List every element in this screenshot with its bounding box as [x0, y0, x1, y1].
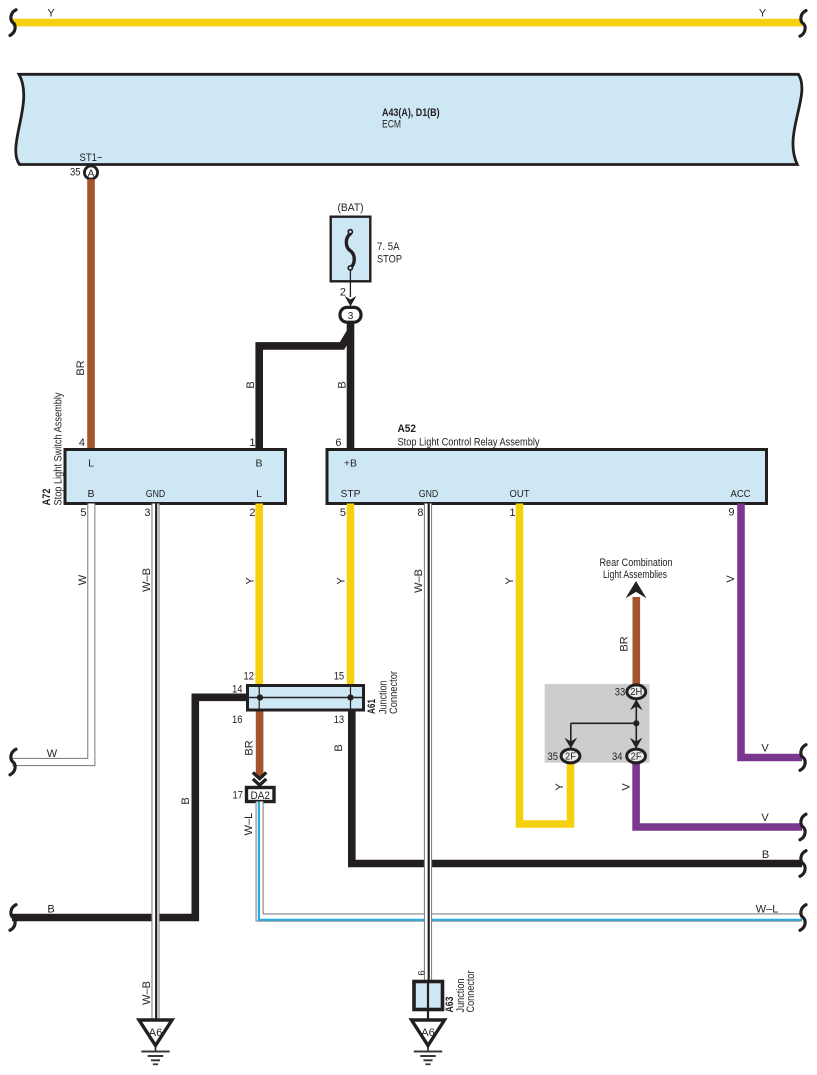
svg-text:W–B: W–B [141, 568, 153, 592]
svg-text:W–L: W–L [756, 904, 779, 916]
svg-text:Connector: Connector [465, 970, 477, 1012]
svg-text:3: 3 [348, 311, 354, 322]
svg-text:+B: +B [344, 458, 357, 470]
svg-text:(BAT): (BAT) [338, 202, 364, 214]
svg-text:Stop Light Control Relay Assem: Stop Light Control Relay Assembly [398, 437, 540, 449]
svg-text:A52: A52 [398, 423, 417, 435]
svg-text:L: L [88, 458, 94, 470]
svg-text:B: B [762, 849, 769, 861]
svg-text:9: 9 [728, 507, 734, 519]
svg-text:V: V [761, 743, 769, 755]
svg-text:Rear Combination: Rear Combination [600, 557, 673, 569]
svg-text:BR: BR [75, 360, 87, 375]
svg-text:B: B [87, 488, 94, 500]
svg-text:15: 15 [334, 671, 345, 683]
svg-text:A61: A61 [366, 699, 378, 714]
svg-text:14: 14 [232, 684, 243, 696]
svg-text:2F: 2F [565, 751, 576, 762]
svg-text:4: 4 [79, 437, 85, 449]
svg-text:B: B [245, 381, 257, 388]
svg-text:ECM: ECM [382, 118, 401, 130]
svg-text:Y: Y [47, 8, 55, 20]
svg-text:STP: STP [341, 488, 361, 500]
svg-text:GND: GND [419, 488, 439, 500]
svg-text:16: 16 [232, 714, 243, 726]
svg-text:Y: Y [244, 577, 256, 585]
svg-text:3: 3 [144, 507, 150, 519]
svg-text:STOP: STOP [377, 254, 402, 266]
svg-text:BR: BR [244, 740, 256, 755]
svg-text:B: B [47, 904, 54, 916]
svg-text:B: B [333, 744, 345, 751]
svg-text:A72: A72 [41, 489, 53, 506]
svg-text:Y: Y [759, 8, 767, 20]
svg-text:Light Assemblies: Light Assemblies [603, 569, 667, 581]
svg-text:34: 34 [612, 751, 623, 763]
svg-text:35: 35 [70, 167, 81, 179]
svg-text:8: 8 [417, 507, 423, 519]
svg-text:2: 2 [249, 507, 255, 519]
svg-text:B: B [337, 381, 349, 388]
svg-text:13: 13 [334, 714, 345, 726]
svg-text:OUT: OUT [510, 488, 531, 500]
svg-text:Y: Y [504, 577, 516, 585]
svg-text:GND: GND [146, 488, 166, 500]
svg-text:Y: Y [554, 783, 566, 791]
svg-text:W–B: W–B [413, 569, 425, 593]
svg-text:5: 5 [80, 507, 86, 519]
svg-text:ST1−: ST1− [80, 152, 103, 164]
svg-text:V: V [620, 783, 632, 791]
svg-text:Stop Light Switch Assembly: Stop Light Switch Assembly [53, 392, 65, 505]
svg-text:1: 1 [509, 507, 515, 519]
svg-text:12: 12 [244, 671, 255, 683]
svg-text:17: 17 [233, 790, 244, 802]
svg-text:7. 5A: 7. 5A [377, 241, 400, 253]
svg-text:V: V [725, 575, 737, 583]
svg-text:B: B [180, 797, 192, 804]
svg-text:DA2: DA2 [250, 790, 270, 802]
svg-text:6: 6 [335, 437, 341, 449]
svg-text:1: 1 [249, 437, 255, 449]
svg-text:2H: 2H [630, 687, 642, 698]
svg-text:L: L [256, 488, 262, 500]
svg-text:W–B: W–B [141, 981, 153, 1005]
svg-text:35: 35 [548, 751, 559, 763]
svg-text:5: 5 [340, 507, 346, 519]
svg-text:A: A [88, 168, 95, 179]
svg-text:A43(A), D1(B): A43(A), D1(B) [382, 107, 440, 119]
svg-text:V: V [761, 812, 769, 824]
svg-text:ACC: ACC [731, 488, 751, 500]
svg-text:W–L: W–L [243, 813, 255, 836]
svg-text:BR: BR [618, 636, 630, 651]
svg-text:W: W [77, 574, 89, 585]
svg-text:Connector: Connector [388, 671, 400, 714]
svg-text:B: B [255, 458, 262, 470]
svg-text:33: 33 [615, 687, 626, 699]
svg-text:Y: Y [336, 577, 348, 585]
svg-text:W: W [47, 748, 58, 760]
svg-text:2F: 2F [631, 751, 642, 762]
svg-text:6: 6 [416, 970, 427, 975]
